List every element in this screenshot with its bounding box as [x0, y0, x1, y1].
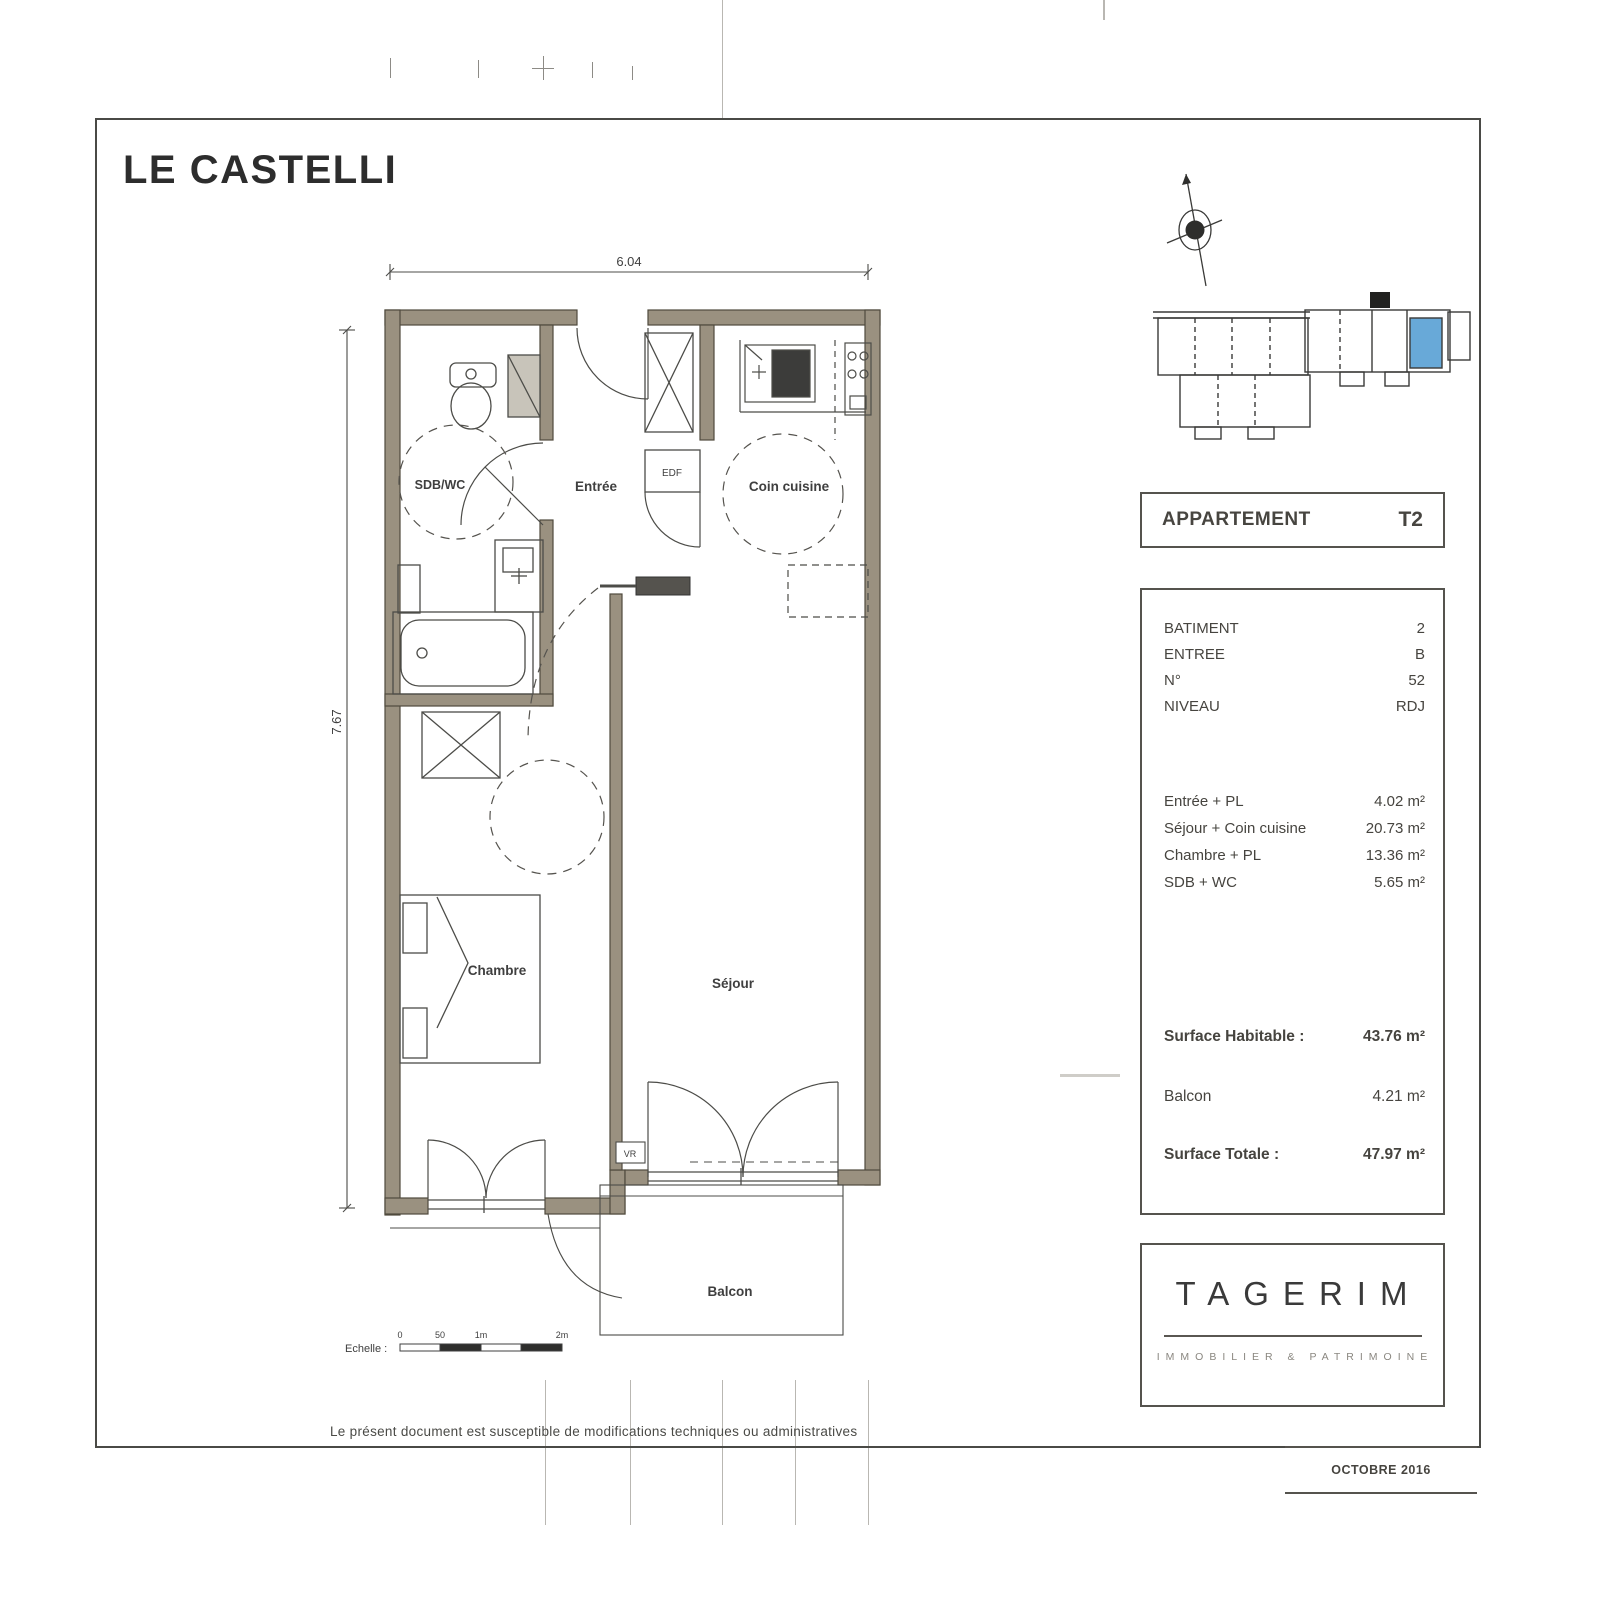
footer-disclaimer: Le présent document est susceptible de m…	[330, 1424, 857, 1439]
closet-placard-chambre	[422, 712, 500, 778]
area-label: SDB + WC	[1164, 869, 1237, 896]
scale-bar: Echelle : 0 50 1m 2m	[345, 1330, 568, 1355]
doors	[428, 328, 838, 1198]
brand-tagline: IMMOBILIER & PATRIMOINE	[1142, 1351, 1443, 1363]
area-label: Chambre + PL	[1164, 842, 1261, 869]
toilet-fixture	[450, 363, 496, 429]
scan-artifact-tick	[478, 60, 479, 78]
apartment-type: T2	[1398, 508, 1423, 532]
document-date: OCTOBRE 2016	[1285, 1446, 1477, 1494]
total-value: 4.21 m²	[1372, 1084, 1425, 1110]
area-value: 20.73 m²	[1366, 815, 1425, 842]
brand-rule	[1164, 1335, 1422, 1337]
highlighted-unit	[1410, 318, 1442, 368]
area-row: Chambre + PL 13.36 m²	[1164, 842, 1425, 869]
info-row: NIVEAU RDJ	[1164, 694, 1425, 720]
area-value: 13.36 m²	[1366, 842, 1425, 869]
info-row: BATIMENT 2	[1164, 616, 1425, 642]
scale-tick: 50	[435, 1330, 445, 1340]
total-row-habitable: Surface Habitable : 43.76 m²	[1164, 1024, 1425, 1050]
dimension-height-label: 7.67	[329, 709, 344, 734]
scale-tick: 0	[397, 1330, 402, 1340]
info-value: 52	[1408, 668, 1425, 694]
total-label: Surface Habitable :	[1164, 1024, 1304, 1050]
kitchen-sink	[745, 345, 815, 402]
brand-box: TAGERIM IMMOBILIER & PATRIMOINE	[1140, 1243, 1445, 1407]
area-value: 4.02 m²	[1374, 788, 1425, 815]
total-label: Surface Totale :	[1164, 1142, 1279, 1168]
vent-box	[508, 355, 540, 417]
scale-tick: 1m	[475, 1330, 488, 1340]
closet-placard-entree	[645, 333, 693, 432]
apartment-label: APPARTEMENT	[1162, 509, 1311, 531]
compass-and-siteplan	[1100, 160, 1500, 460]
dimension-lines	[339, 264, 872, 1212]
scale-label: Echelle :	[345, 1343, 387, 1355]
area-row: Séjour + Coin cuisine 20.73 m²	[1164, 815, 1425, 842]
floor-plan: 6.04 7.67	[290, 240, 910, 1370]
info-row: N° 52	[1164, 668, 1425, 694]
info-value: RDJ	[1396, 694, 1425, 720]
area-label: Entrée + PL	[1164, 788, 1244, 815]
area-value: 5.65 m²	[1374, 869, 1425, 896]
dimension-width-label: 6.04	[616, 254, 641, 269]
pass-counter	[600, 577, 690, 595]
compass-icon	[1167, 174, 1222, 286]
page-title: LE CASTELLI	[123, 148, 397, 193]
room-label-vr: VR	[624, 1149, 637, 1159]
area-row: Entrée + PL 4.02 m²	[1164, 788, 1425, 815]
scan-artifact-tick	[592, 62, 593, 78]
total-row-balcon: Balcon 4.21 m²	[1164, 1084, 1425, 1110]
total-value: 47.97 m²	[1363, 1142, 1425, 1168]
info-label: NIVEAU	[1164, 694, 1220, 720]
apartment-type-box: APPARTEMENT T2	[1140, 492, 1445, 548]
scanned-floorplan-document: LE CASTELLI	[0, 0, 1600, 1600]
info-value: 2	[1417, 616, 1425, 642]
apartment-info-panel: BATIMENT 2 ENTREE B N° 52 NIVEAU RDJ Ent…	[1140, 588, 1445, 1215]
radiator	[398, 565, 420, 613]
scan-artifact-line	[722, 0, 723, 118]
room-label-sejour: Séjour	[712, 976, 755, 991]
info-row: ENTREE B	[1164, 642, 1425, 668]
site-key-plan	[1153, 292, 1470, 439]
washbasin-fixture	[495, 540, 543, 612]
scan-artifact-tick	[390, 58, 391, 78]
room-label-chambre: Chambre	[468, 963, 527, 978]
total-label: Balcon	[1164, 1084, 1211, 1110]
area-label: Séjour + Coin cuisine	[1164, 815, 1306, 842]
brand-logo: TAGERIM	[1142, 1275, 1443, 1313]
total-value: 43.76 m²	[1363, 1024, 1425, 1050]
bathroom-fixtures	[393, 355, 543, 778]
scan-artifact-line	[1103, 0, 1105, 20]
room-label-sdb: SDB/WC	[415, 478, 466, 492]
info-value: B	[1415, 642, 1425, 668]
room-label-edf: EDF	[662, 468, 682, 479]
area-row: SDB + WC 5.65 m²	[1164, 869, 1425, 896]
room-label-balcon: Balcon	[707, 1284, 752, 1299]
bathtub-fixture	[393, 612, 533, 694]
room-label-entree: Entrée	[575, 479, 618, 494]
info-label: ENTREE	[1164, 642, 1225, 668]
total-row-totale: Surface Totale : 47.97 m²	[1164, 1142, 1425, 1168]
walls	[385, 310, 880, 1215]
info-label: N°	[1164, 668, 1181, 694]
scan-artifact-tick	[543, 56, 544, 80]
room-label-cuisine: Coin cuisine	[749, 479, 830, 494]
scale-tick: 2m	[556, 1330, 569, 1340]
scan-artifact-tick	[632, 66, 633, 80]
site-plan-marker	[1370, 292, 1390, 308]
appliance-dashed	[788, 565, 868, 617]
info-label: BATIMENT	[1164, 616, 1239, 642]
bed-fixture	[400, 895, 540, 1063]
